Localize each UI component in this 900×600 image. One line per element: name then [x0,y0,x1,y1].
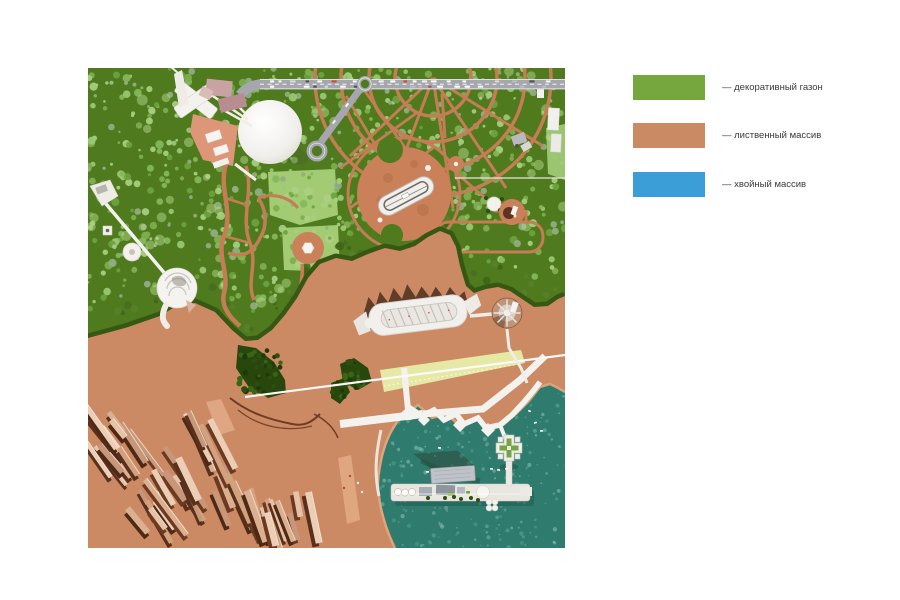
dark-tree [236,381,242,387]
ripple [399,464,402,467]
tree [407,76,411,80]
tree [164,171,170,177]
ripple [498,534,500,536]
tree [386,69,392,75]
car [270,86,274,88]
ripple [402,457,404,459]
dark-tree [241,386,247,392]
tree [483,225,490,232]
tree [543,292,549,298]
tree [103,106,107,110]
tree [103,288,111,296]
tree [177,148,183,154]
dark-tree [253,350,257,354]
park-masterplan-map [88,68,565,548]
ripple [540,482,542,484]
tree [154,297,158,301]
tree [272,175,280,183]
dark-tree [356,370,361,375]
tree [235,293,241,299]
tree [92,238,97,243]
ripple [481,464,482,465]
dark-tree [353,362,356,365]
tree [542,213,546,217]
ripple [420,448,424,452]
tree [396,117,399,120]
tree [216,216,219,219]
tree [498,265,503,270]
ripple [504,508,507,511]
tree [451,208,454,211]
ripple [536,419,537,420]
tree [269,291,272,294]
tree [138,149,141,152]
white-building [547,108,559,131]
tree [323,194,331,202]
tree [200,267,207,274]
tree [289,169,293,173]
dark-tree [348,372,354,378]
tree [272,234,278,240]
tree [147,165,154,172]
tree [150,222,157,229]
dome [238,100,302,164]
tree [95,84,98,87]
legend-swatch-coniferous [633,172,705,197]
car [431,80,437,82]
tree [425,71,432,78]
tree [550,221,557,228]
tree [193,157,198,162]
tree [114,307,122,315]
legend-label-deciduous: — лиственный массив [722,130,821,141]
tree [325,226,328,229]
tree [94,94,97,97]
tree [148,173,151,176]
clover-pool [486,505,492,511]
pier-tree [426,496,430,500]
dark-tree [342,373,348,379]
ripple [470,449,473,452]
clover-pool [492,499,498,505]
tree [124,81,128,85]
tree [165,179,170,184]
tree [528,241,533,246]
tree [108,259,116,267]
car [413,80,417,82]
tree [272,267,277,272]
tree [166,140,172,146]
ripple [551,438,553,440]
tree [490,130,498,138]
ripple [461,446,464,449]
tree [311,106,314,109]
tree [527,169,536,178]
tree [282,279,291,288]
car [354,86,357,88]
tree [310,126,315,131]
ripple [485,444,488,447]
ripple [524,416,526,418]
plaza-texture [383,173,393,183]
car [454,86,460,88]
car [542,86,546,88]
tree [553,287,557,291]
tree [325,235,334,244]
tree [203,174,210,181]
dark-tree [264,360,267,363]
dark-tree [340,388,344,392]
round-bastion [492,298,522,328]
ripple [500,506,502,508]
white-dot [378,218,383,223]
tree [280,234,283,237]
ripple [520,521,523,524]
ripple [529,404,532,407]
tree [240,156,248,164]
tree [123,90,131,98]
tree [333,198,338,203]
tree [321,202,328,209]
tree [273,205,280,212]
tree [155,140,163,148]
car [332,80,337,82]
tree [172,141,177,146]
tree [337,190,339,192]
ripple [474,539,476,541]
tree [142,208,149,215]
tree [187,160,191,164]
ripple [438,536,440,538]
gray-structure-dot [515,144,519,148]
roundabout-island [361,80,369,88]
dark-tree [278,365,283,370]
tree [552,268,558,274]
car [437,86,443,88]
ripple [382,479,386,483]
pier-tree [476,498,480,502]
ripple [492,469,495,472]
ripple [407,524,411,528]
tree [136,122,142,128]
tree [137,95,148,106]
tree [101,270,106,275]
tree [117,141,120,144]
ripple [424,430,428,434]
ripple [547,433,551,437]
tree [144,281,151,288]
tree [453,199,458,204]
ripple [381,485,384,488]
tree [516,72,520,76]
tree [289,73,292,76]
tree [199,226,203,230]
tree [143,125,151,133]
tree [419,126,422,129]
ripple [556,464,558,466]
tree-dot [486,209,490,213]
tree [146,86,152,92]
tree [458,215,468,225]
tree [118,131,120,133]
dark-tree [273,372,278,377]
tree [455,125,463,133]
tree [133,83,137,87]
ripple [447,540,451,544]
ripple [558,412,560,414]
tree [146,118,153,125]
car [428,86,431,88]
ripple [510,527,513,530]
tree [388,101,392,105]
ripple [456,531,459,534]
tree [284,100,287,103]
tree [134,180,141,187]
tree [194,172,198,176]
tree [229,296,232,299]
tree [230,304,234,308]
ripple [563,464,564,465]
tree [206,243,211,248]
ripple [494,477,496,479]
tree [110,163,113,166]
car [478,86,483,88]
tree [514,265,518,269]
ripple [434,507,436,509]
tree [416,143,422,149]
tree [328,180,332,184]
tree [154,235,165,246]
car [462,80,466,82]
car [379,80,384,82]
stadium-fort-link [470,314,492,316]
car [353,80,357,82]
tree [259,275,264,280]
tree [371,76,373,78]
tree [233,275,237,279]
pier-tree [443,496,447,500]
dark-tree [356,375,359,378]
ripple [456,527,458,529]
tree [102,167,105,170]
plaza-texture [410,160,418,168]
ripple [439,507,441,509]
tree [157,212,167,222]
tree [331,163,338,170]
lawn-cutout [377,137,403,163]
tree [139,223,147,231]
car [325,86,329,88]
tree [159,176,165,182]
tree [469,254,474,259]
ripple [398,521,400,523]
ripple [526,432,528,434]
tree [331,158,334,161]
tree [336,178,342,184]
tree [90,103,96,109]
tree [560,220,564,224]
dark-tree [255,383,259,387]
car [422,80,427,82]
tree [251,219,259,227]
ripple [539,421,541,423]
ripple [401,474,404,477]
tree [486,259,490,263]
ripple [529,451,532,454]
tree [473,202,482,211]
pier-arm [506,460,512,486]
ripple [543,428,547,432]
ripple [518,527,520,529]
ripple [380,502,384,506]
tree [553,155,558,160]
tree [181,222,186,227]
tree [263,281,269,287]
car [520,86,525,88]
carousel-center [454,162,458,166]
tower-dot [514,215,517,218]
dark-tree [257,374,260,377]
clover-pool [492,505,498,511]
tree [92,300,95,303]
pier-platform [520,487,532,496]
white-building [551,134,562,152]
ripple [553,492,555,494]
dark-tree [264,364,267,367]
tree [435,134,440,139]
tree [112,245,117,250]
tree [169,209,174,214]
pier-building [419,487,432,496]
ripple [469,432,471,434]
tree [193,214,197,218]
tree [337,131,341,135]
tree [451,132,453,134]
tree [517,162,523,168]
tree [283,230,288,235]
tree [311,214,317,220]
ripple [555,497,558,500]
ripple [457,442,461,446]
tree [175,167,179,171]
ripple [553,527,557,531]
tree [164,164,167,167]
tree [272,75,275,78]
tree [232,186,239,193]
car [546,80,551,82]
pier-tree [452,495,456,499]
car [340,86,346,88]
car [304,86,310,88]
tree [530,187,535,192]
tree [280,176,286,182]
tree [471,270,477,276]
ripple [514,476,516,478]
tree [338,195,344,201]
ripple [432,511,436,515]
ripple [392,443,395,446]
tree [344,221,351,228]
tree [341,220,344,223]
tree [150,147,156,153]
tree [208,228,211,231]
car [306,80,310,82]
tree [347,246,351,250]
dark-tree [347,359,353,365]
plaza-texture [417,204,429,216]
tree-dot [500,197,504,201]
tree [116,186,120,190]
ripple [420,544,423,547]
tree [105,81,108,84]
tree [162,183,167,188]
ripple [519,531,523,535]
tree [365,108,370,113]
tree [245,243,248,246]
ripple [388,479,392,483]
ripple [402,544,404,546]
ripple [414,446,418,450]
dark-tree [254,359,258,363]
car [404,80,408,82]
dark-tree [336,380,339,383]
tree [166,196,174,204]
tree [209,191,216,198]
tree [130,209,134,213]
tree [369,117,373,121]
ripple [534,519,537,522]
ripple [495,516,499,520]
ripple [392,518,396,522]
tree [269,295,277,303]
tree [103,250,108,255]
ripple [424,446,426,448]
ripple [528,475,530,477]
ripple [447,446,449,448]
tree [307,176,311,180]
ripple [444,506,448,510]
tree [483,125,486,128]
ripple [389,464,391,466]
ripple [558,445,561,448]
tree [348,231,354,237]
ripple [437,425,439,427]
tree [499,257,505,263]
ripple [438,435,441,438]
tree [100,294,106,300]
ripple [526,466,528,468]
tree [513,97,516,100]
tree [195,274,200,279]
ripple [541,413,544,416]
tree [110,81,114,85]
dark-tree [242,370,248,376]
tree [255,228,258,231]
tree [263,70,265,72]
ripple [429,431,431,433]
pier-tree [469,496,473,500]
ripple [385,523,387,525]
tree [275,307,278,310]
tree [503,114,509,120]
tree [300,200,308,208]
ripple [534,526,537,529]
ripple [486,451,488,453]
tree [285,92,290,97]
dark-tree [267,363,273,369]
legend-swatch-decorative-lawn [633,75,705,100]
tree [270,168,274,172]
